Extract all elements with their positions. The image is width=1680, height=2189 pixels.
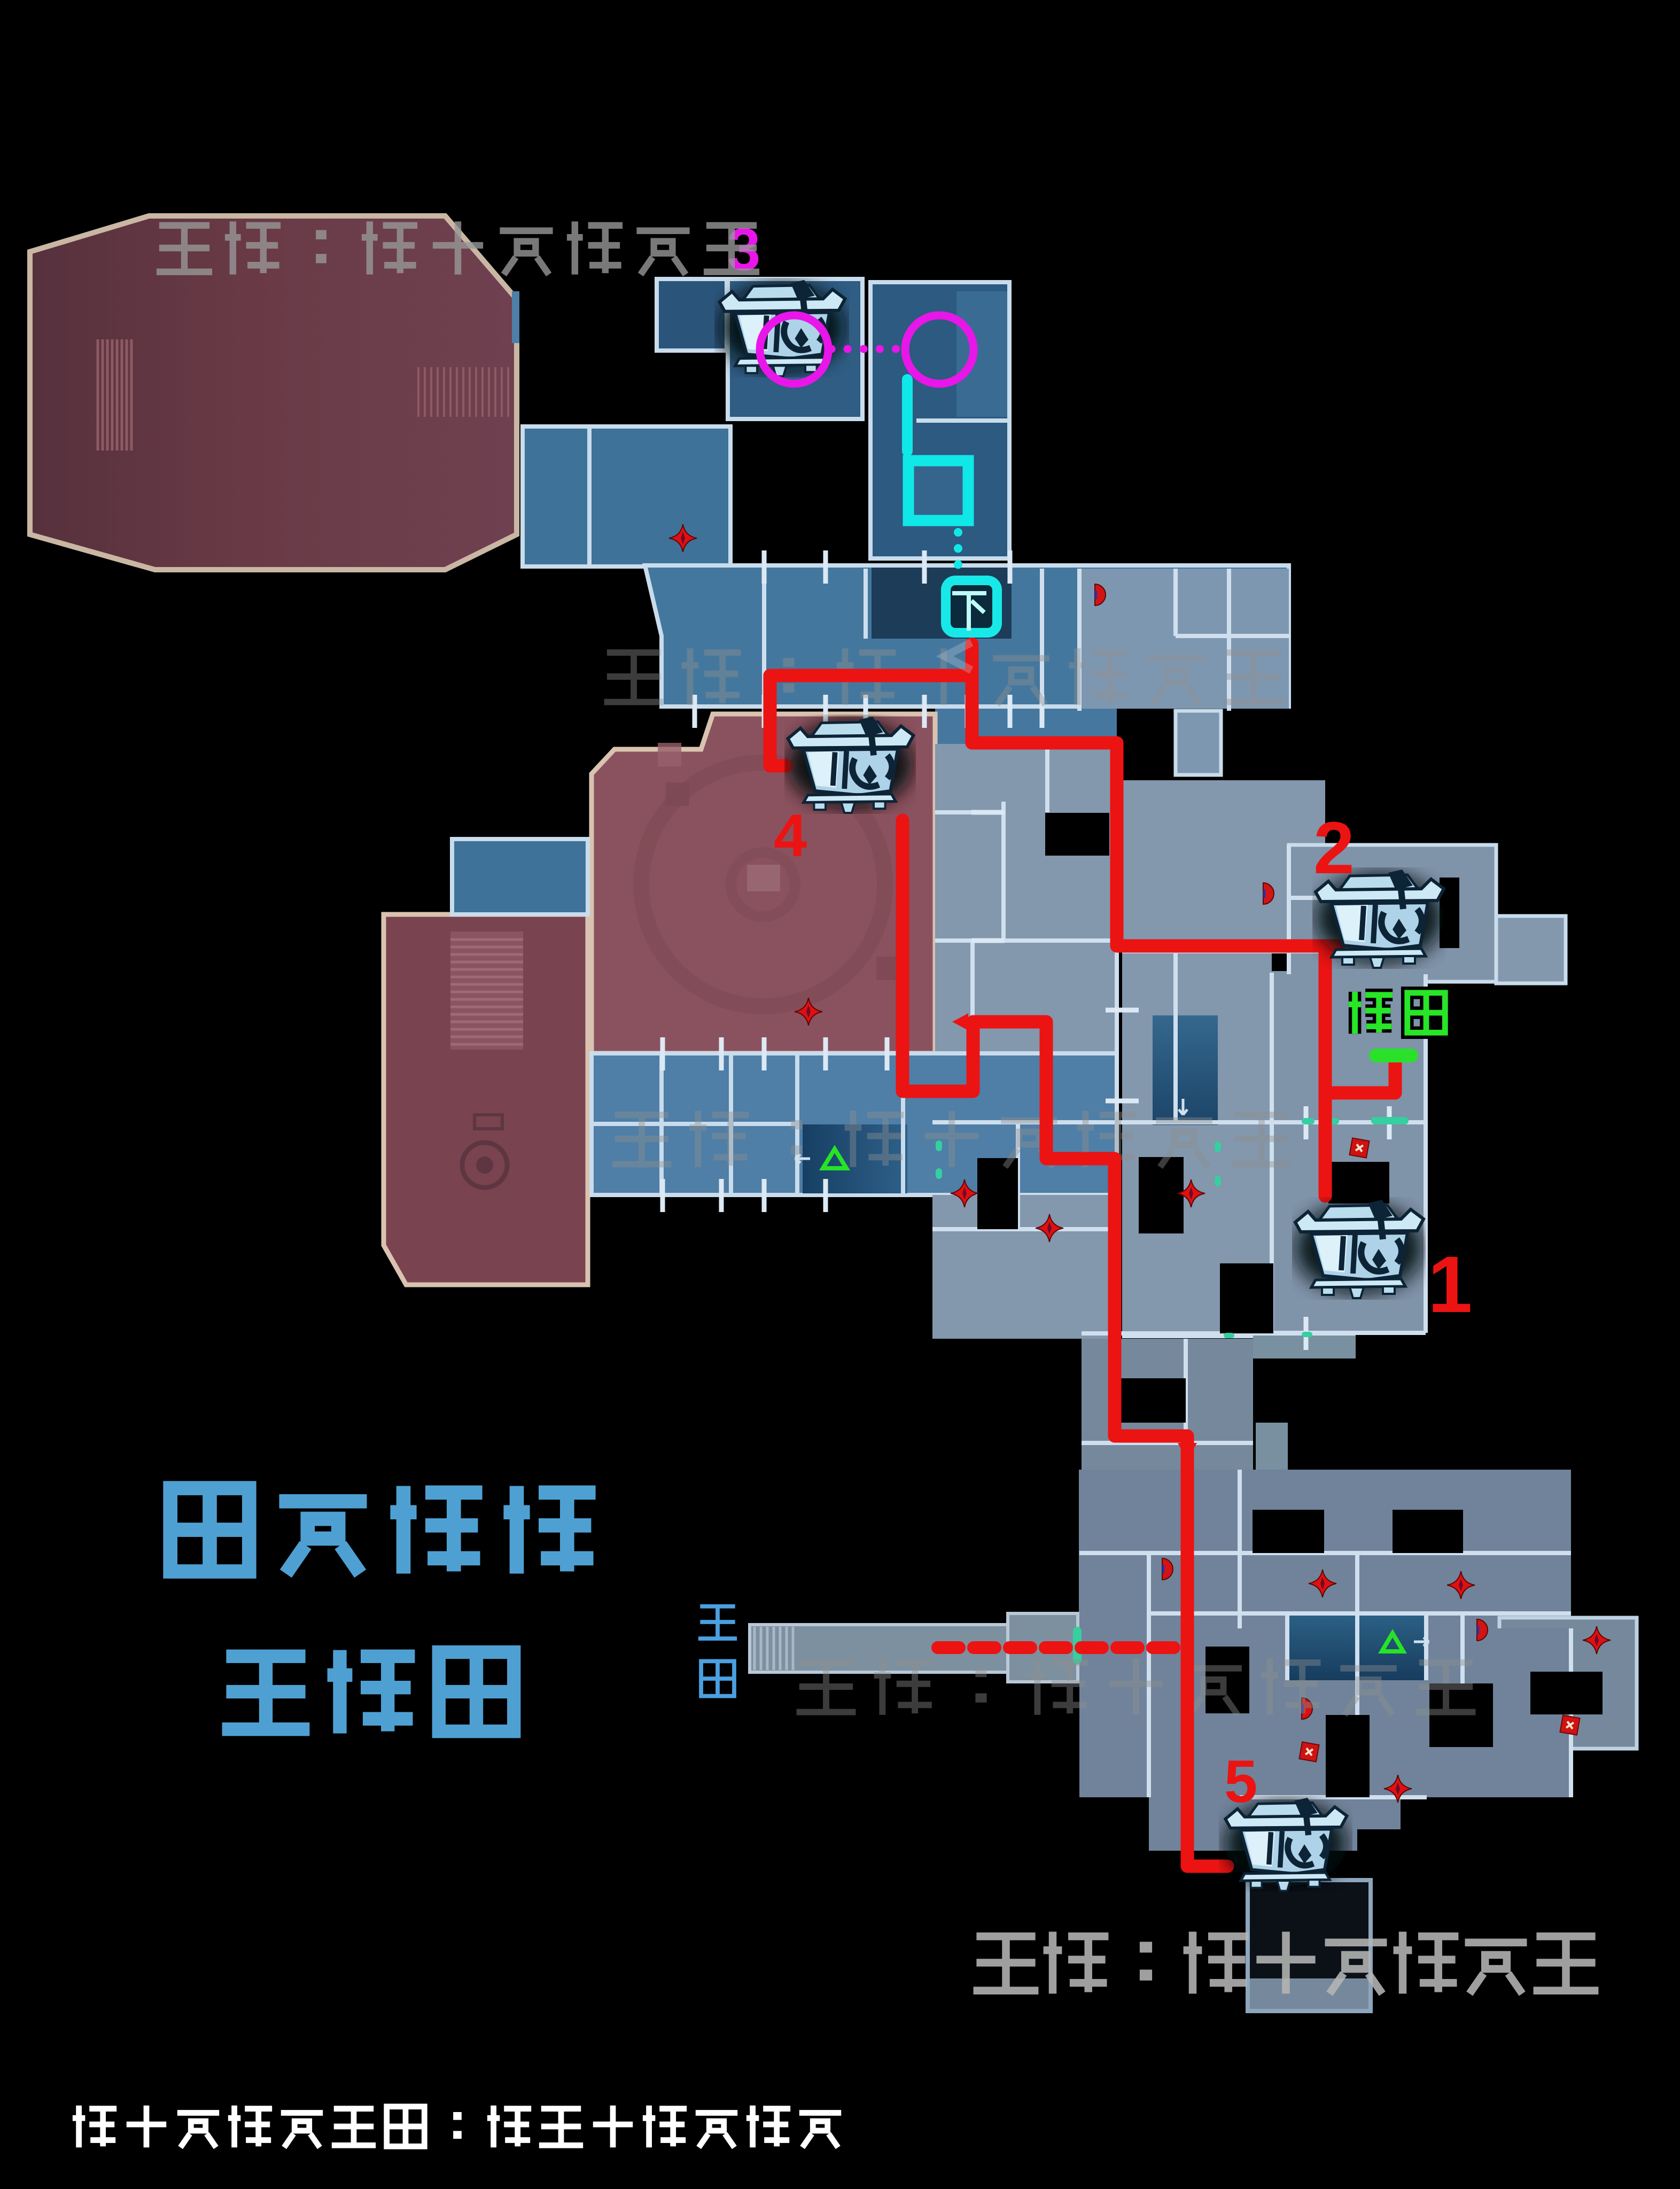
svg-text:1: 1 [1428, 1239, 1472, 1329]
svg-text:5: 5 [1224, 1748, 1257, 1815]
svg-text:2: 2 [1313, 807, 1355, 889]
svg-text:4: 4 [774, 802, 807, 869]
